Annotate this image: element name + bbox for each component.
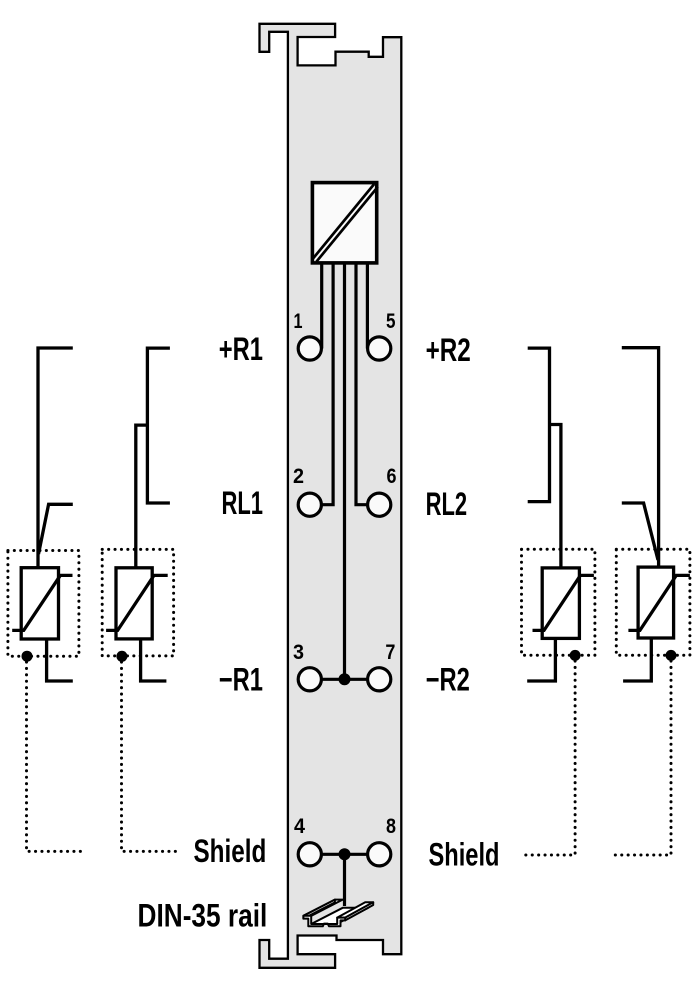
svg-text:1: 1 — [294, 310, 303, 333]
svg-text:8: 8 — [386, 815, 396, 838]
svg-text:3: 3 — [293, 641, 304, 664]
svg-text:+R1: +R1 — [219, 331, 263, 367]
svg-text:Shield: Shield — [194, 833, 267, 869]
svg-text:5: 5 — [386, 310, 396, 333]
svg-text:−R2: −R2 — [426, 661, 470, 697]
svg-text:+R2: +R2 — [426, 332, 471, 368]
svg-text:DIN-35 rail: DIN-35 rail — [138, 898, 268, 934]
svg-text:7: 7 — [385, 641, 395, 664]
svg-text:4: 4 — [294, 815, 305, 838]
svg-text:6: 6 — [387, 465, 397, 488]
svg-text:2: 2 — [293, 465, 304, 488]
svg-text:Shield: Shield — [429, 837, 500, 873]
svg-text:RL1: RL1 — [222, 485, 264, 521]
svg-text:−R1: −R1 — [219, 661, 263, 697]
svg-text:RL2: RL2 — [426, 486, 468, 522]
